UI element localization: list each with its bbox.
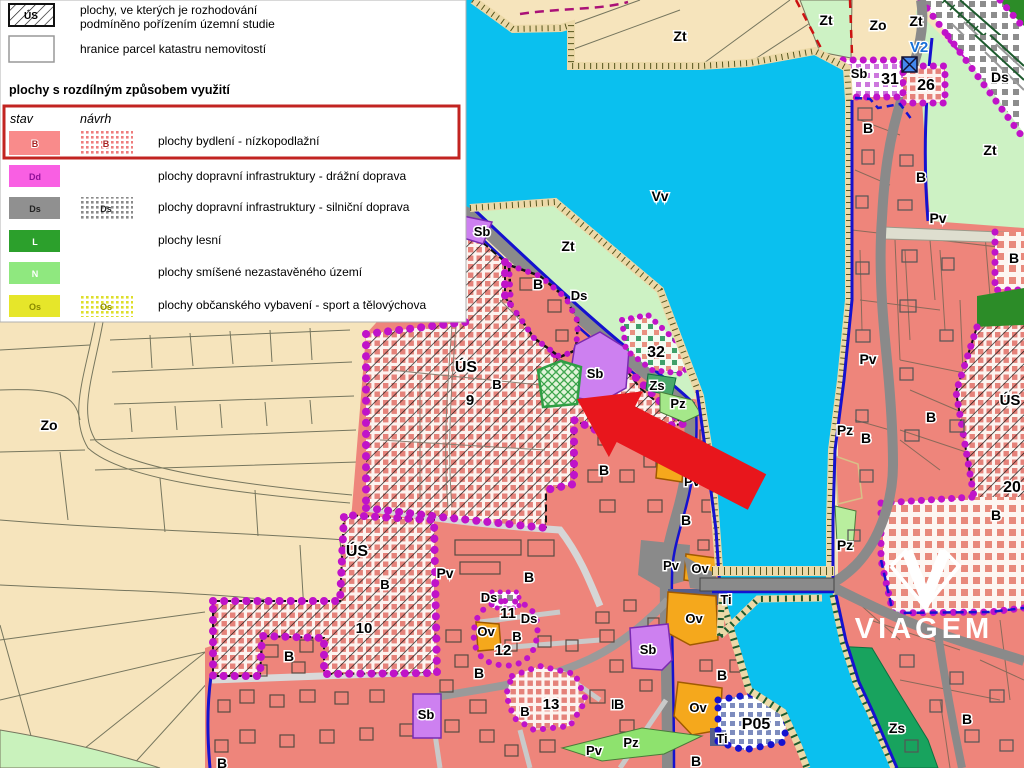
svg-text:Zo: Zo xyxy=(40,417,57,433)
svg-text:Dd: Dd xyxy=(29,172,41,182)
svg-text:Sb: Sb xyxy=(640,642,657,657)
svg-text:B: B xyxy=(217,755,227,768)
svg-text:Ds: Ds xyxy=(100,204,112,214)
svg-text:ÚS: ÚS xyxy=(1000,391,1021,409)
svg-text:B: B xyxy=(916,169,926,185)
svg-text:Os: Os xyxy=(29,302,41,312)
svg-text:B: B xyxy=(380,577,389,592)
svg-text:Ti: Ti xyxy=(716,731,727,746)
svg-text:Pv: Pv xyxy=(586,743,603,758)
svg-text:Ds: Ds xyxy=(521,611,538,626)
svg-text:B: B xyxy=(474,665,484,681)
svg-text:podmíněno pořízením územní stu: podmíněno pořízením územní studie xyxy=(80,17,275,31)
svg-text:13: 13 xyxy=(543,696,560,713)
svg-text:Pz: Pz xyxy=(837,537,853,553)
svg-text:Vv: Vv xyxy=(651,188,668,204)
svg-text:plochy smíšené nezastavěného ú: plochy smíšené nezastavěného území xyxy=(158,265,363,279)
svg-text:B: B xyxy=(103,139,110,149)
svg-text:11: 11 xyxy=(500,605,516,622)
svg-text:10: 10 xyxy=(356,620,373,637)
svg-text:plochy, ve kterých je rozhodov: plochy, ve kterých je rozhodování xyxy=(80,3,258,17)
svg-text:N: N xyxy=(32,269,39,279)
svg-text:B: B xyxy=(599,462,609,478)
svg-text:Ds: Ds xyxy=(29,204,41,214)
svg-text:L: L xyxy=(32,237,38,247)
svg-text:Zs: Zs xyxy=(889,720,906,736)
svg-text:B: B xyxy=(492,377,501,392)
svg-text:Ti: Ti xyxy=(720,592,731,607)
svg-text:B: B xyxy=(520,704,529,719)
svg-text:Pv: Pv xyxy=(859,351,876,367)
svg-text:Sb: Sb xyxy=(474,224,491,239)
svg-text:plochy občanského vybavení - s: plochy občanského vybavení - sport a těl… xyxy=(158,298,426,312)
svg-text:B: B xyxy=(926,409,936,425)
svg-text:31: 31 xyxy=(881,71,899,88)
svg-text:B: B xyxy=(512,629,521,644)
svg-text:V2: V2 xyxy=(910,39,928,56)
svg-text:B: B xyxy=(284,648,294,664)
svg-text:Zt: Zt xyxy=(909,13,923,29)
svg-text:B: B xyxy=(691,753,701,768)
svg-text:Zo: Zo xyxy=(869,17,886,33)
svg-text:32: 32 xyxy=(647,344,665,361)
svg-text:Zt: Zt xyxy=(673,28,687,44)
svg-text:stav: stav xyxy=(10,112,34,126)
svg-text:Zt: Zt xyxy=(561,238,575,254)
svg-text:Sb: Sb xyxy=(418,707,435,722)
svg-text:plochy lesní: plochy lesní xyxy=(158,233,222,247)
svg-text:26: 26 xyxy=(917,77,935,94)
svg-text:Pv: Pv xyxy=(663,558,680,573)
svg-text:Pz: Pz xyxy=(623,735,639,750)
svg-text:Ds: Ds xyxy=(571,288,588,303)
svg-text:B: B xyxy=(863,120,873,136)
svg-text:B: B xyxy=(861,430,871,446)
svg-text:plochy dopravní infrastruktury: plochy dopravní infrastruktury - drážní … xyxy=(158,169,406,183)
svg-text:B: B xyxy=(614,696,624,712)
svg-text:hranice parcel katastru nemovi: hranice parcel katastru nemovitostí xyxy=(80,42,267,56)
svg-text:návrh: návrh xyxy=(80,112,111,126)
svg-text:B: B xyxy=(962,711,972,727)
svg-text:Zt: Zt xyxy=(983,142,997,158)
svg-text:B: B xyxy=(991,507,1001,523)
svg-text:B: B xyxy=(32,139,39,149)
svg-text:Pv: Pv xyxy=(929,210,946,226)
svg-text:Pz: Pz xyxy=(670,396,686,411)
svg-text:B: B xyxy=(533,276,543,292)
svg-text:Sb: Sb xyxy=(851,66,868,81)
svg-text:B: B xyxy=(1009,250,1019,266)
svg-text:Sb: Sb xyxy=(587,366,604,381)
svg-text:Ov: Ov xyxy=(685,611,703,626)
svg-text:ÚS: ÚS xyxy=(346,541,369,560)
svg-text:Zs: Zs xyxy=(649,378,664,393)
svg-text:VIAGEM: VIAGEM xyxy=(855,613,993,645)
svg-text:Ov: Ov xyxy=(691,561,709,576)
svg-text:B: B xyxy=(524,569,534,585)
svg-text:20: 20 xyxy=(1003,479,1021,496)
svg-text:Pz: Pz xyxy=(837,422,853,438)
svg-text:9: 9 xyxy=(466,392,474,409)
svg-text:ÚS: ÚS xyxy=(455,357,478,376)
svg-text:12: 12 xyxy=(495,642,512,659)
svg-text:plochy s rozdílným způsobem vy: plochy s rozdílným způsobem využití xyxy=(9,83,230,97)
svg-text:B: B xyxy=(681,512,691,528)
svg-text:Ds: Ds xyxy=(481,590,498,605)
svg-text:Pv: Pv xyxy=(436,565,453,581)
svg-text:Ov: Ov xyxy=(477,624,495,639)
svg-text:plochy dopravní infrastruktury: plochy dopravní infrastruktury - silničn… xyxy=(158,200,410,214)
svg-text:P05: P05 xyxy=(742,716,771,733)
svg-text:plochy bydlení - nízkopodlažní: plochy bydlení - nízkopodlažní xyxy=(158,134,320,148)
svg-text:B: B xyxy=(717,667,727,683)
svg-text:Ds: Ds xyxy=(991,69,1009,85)
svg-text:Zt: Zt xyxy=(819,12,833,28)
svg-text:ÚS: ÚS xyxy=(24,9,38,22)
svg-text:Ov: Ov xyxy=(689,700,707,715)
svg-text:Os: Os xyxy=(100,302,112,312)
